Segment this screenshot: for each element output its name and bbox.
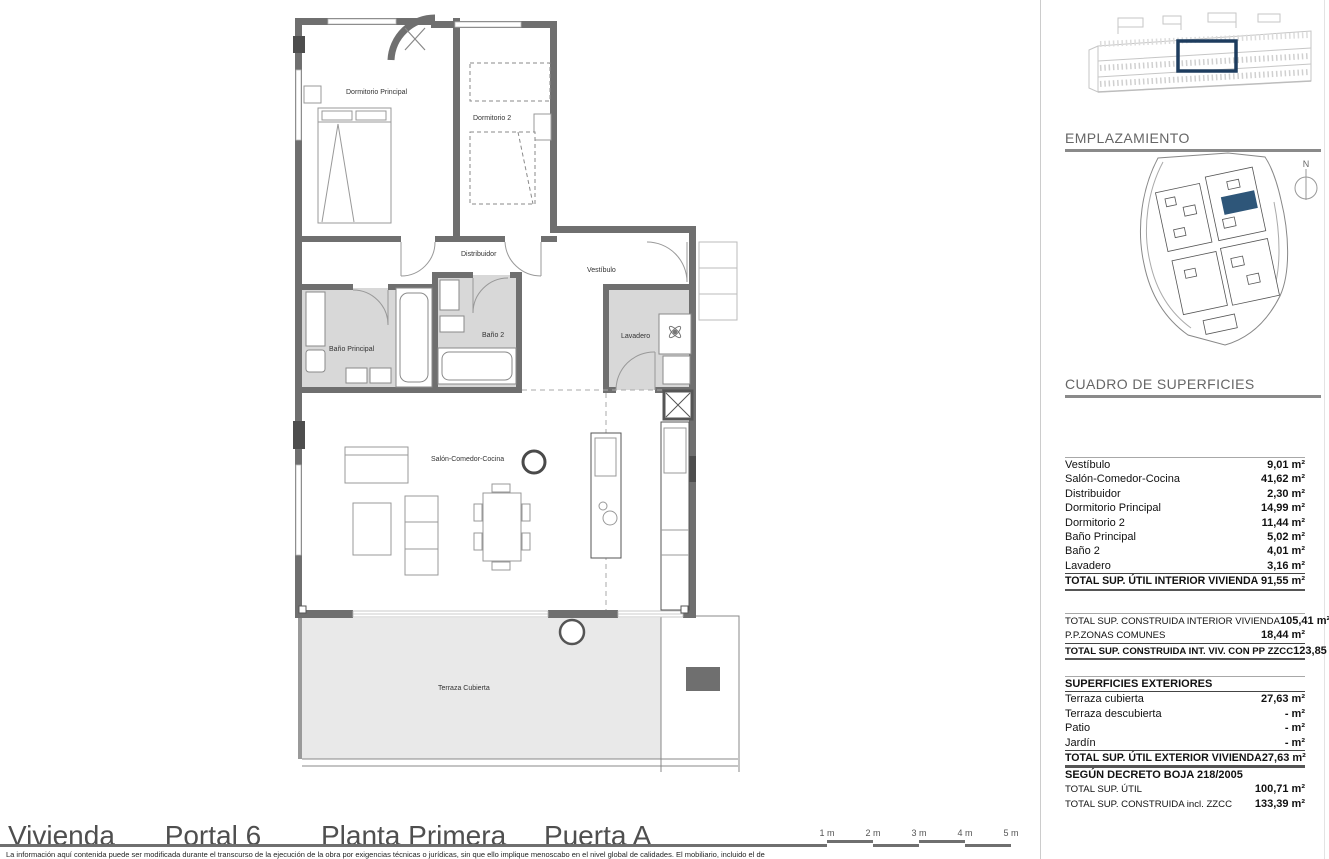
table-row: P.P.ZONAS COMUNES18,44 m²	[1065, 628, 1305, 642]
round-table	[523, 451, 545, 473]
compass-north-label: N	[1290, 160, 1322, 169]
scale-bar-segment	[873, 844, 919, 847]
terrace-extension	[661, 616, 739, 772]
table-row: Dormitorio Principal14,99 m²	[1065, 501, 1305, 515]
table-row: Baño 24,01 m²	[1065, 544, 1305, 558]
salon-furniture	[345, 422, 689, 610]
room-label-salon: Salón-Comedor-Cocina	[431, 456, 504, 463]
table-superficies-interior: Vestíbulo9,01 m² Salón-Comedor-Cocina41,…	[1065, 457, 1305, 591]
shaft-x-icon	[405, 28, 425, 50]
table-row: Salón-Comedor-Cocina41,62 m²	[1065, 472, 1305, 486]
emplazamiento-title: EMPLAZAMIENTO	[1065, 130, 1321, 152]
room-label-lavadero: Lavadero	[621, 333, 650, 340]
table-total-row: TOTAL SUP. ÚTIL EXTERIOR VIVIENDA27,63 m…	[1065, 750, 1305, 767]
room-label-dormitorio-2: Dormitorio 2	[473, 115, 511, 122]
table-row: Lavadero3,16 m²	[1065, 559, 1305, 573]
scale-bar-segment	[827, 840, 873, 843]
shaft-box	[664, 391, 692, 419]
scale-label-3m: 3 m	[904, 828, 934, 838]
scale-label-2m: 2 m	[858, 828, 888, 838]
terrace-column	[560, 620, 584, 644]
scale-bar-segment	[919, 840, 965, 843]
room-label-bano-2: Baño 2	[482, 332, 504, 339]
table-row: TOTAL SUP. CONSTRUIDA INTERIOR VIVIENDA1…	[1065, 614, 1305, 628]
scale-label-4m: 4 m	[950, 828, 980, 838]
floor-plan: Dormitorio Principal Dormitorio 2 Distri…	[293, 10, 743, 772]
entry-landing	[699, 242, 737, 320]
scale-label-5m: 5 m	[996, 828, 1026, 838]
floor-plan-drawing: Dormitorio Principal Dormitorio 2 Distri…	[293, 10, 743, 772]
table-row: Dormitorio 211,44 m²	[1065, 516, 1305, 530]
page-title: Vivienda Portal 6 Planta Primera Puerta …	[8, 820, 693, 852]
title-underline	[0, 844, 827, 847]
table-superficies-exteriores: SUPERFICIES EXTERIORES Terraza cubierta2…	[1065, 676, 1305, 767]
table-row: TOTAL SUP. CONSTRUIDA incl. ZZCC133,39 m…	[1065, 797, 1305, 811]
table-section-header: SEGÚN DECRETO BOJA 218/2005	[1065, 768, 1305, 782]
table-row: Terraza cubierta27,63 m²	[1065, 692, 1305, 706]
room-label-dormitorio-principal: Dormitorio Principal	[346, 89, 408, 96]
bedroom-furniture	[304, 63, 551, 223]
site-map	[1128, 152, 1308, 350]
lavadero-fixtures	[659, 314, 691, 384]
table-section-header: SUPERFICIES EXTERIORES	[1065, 677, 1305, 692]
compass: N	[1290, 160, 1322, 208]
table-row: Terraza descubierta- m²	[1065, 707, 1305, 721]
page-edge-line	[1324, 0, 1325, 859]
disclaimer-text: La información aquí contenida puede ser …	[6, 850, 1036, 859]
table-row: Vestíbulo9,01 m²	[1065, 458, 1305, 472]
room-label-vestibulo: Vestíbulo	[587, 267, 616, 274]
sidebar-divider	[1040, 0, 1041, 859]
table-row: Distribuidor2,30 m²	[1065, 487, 1305, 501]
table-decreto: SEGÚN DECRETO BOJA 218/2005 TOTAL SUP. Ú…	[1065, 766, 1305, 811]
table-superficies-construida: TOTAL SUP. CONSTRUIDA INTERIOR VIVIENDA1…	[1065, 613, 1305, 660]
room-label-distribuidor: Distribuidor	[461, 251, 497, 258]
building-elevation	[1083, 4, 1321, 114]
scale-bar-segment	[965, 844, 1011, 847]
room-label-terraza: Terraza Cubierta	[438, 685, 490, 692]
cuadro-superficies-title: CUADRO DE SUPERFICIES	[1065, 376, 1321, 398]
room-label-bano-principal: Baño Principal	[329, 346, 375, 353]
table-row: Baño Principal5,02 m²	[1065, 530, 1305, 544]
table-row: Jardín- m²	[1065, 736, 1305, 750]
table-total-row: TOTAL SUP. ÚTIL INTERIOR VIVIENDA91,55 m…	[1065, 573, 1305, 590]
scale-label-1m: 1 m	[812, 828, 842, 838]
compass-north-icon	[1290, 169, 1322, 203]
table-total-row: TOTAL SUP. CONSTRUIDA INT. VIV. CON PP Z…	[1065, 643, 1305, 660]
table-row: Patio- m²	[1065, 721, 1305, 735]
table-row: TOTAL SUP. ÚTIL100,71 m²	[1065, 782, 1305, 796]
